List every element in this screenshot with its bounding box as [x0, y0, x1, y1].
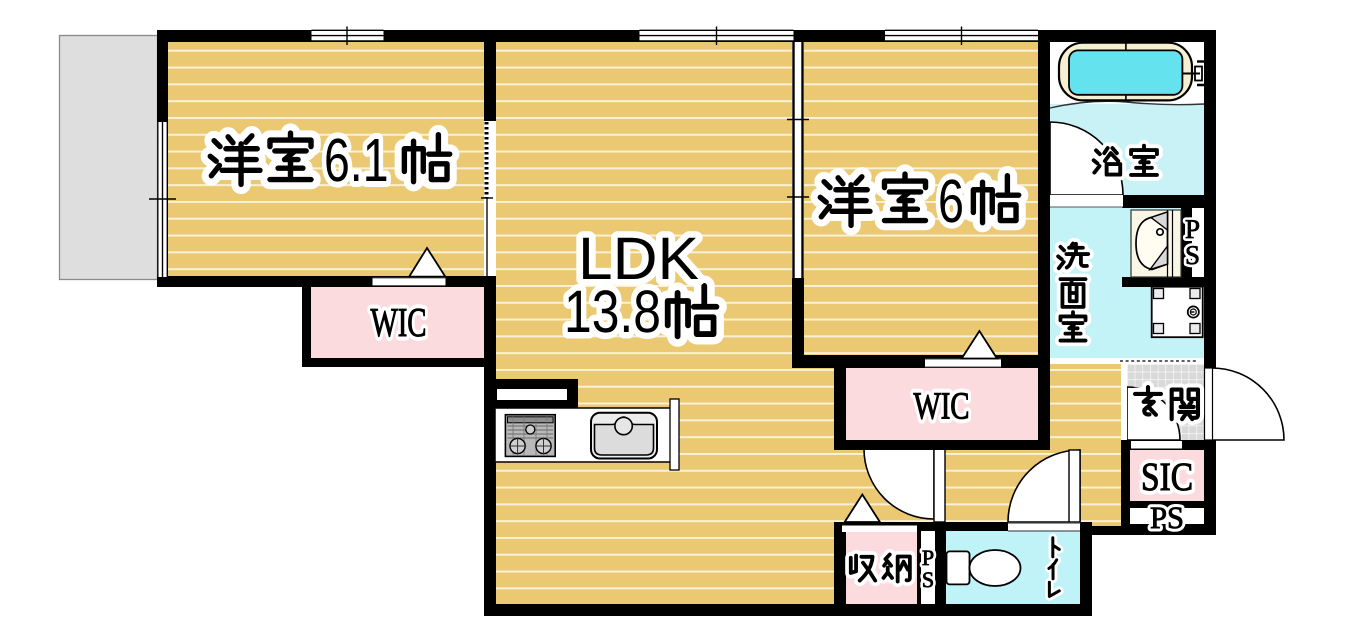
svg-text:6: 6 — [938, 167, 964, 235]
svg-text:S: S — [1185, 240, 1200, 270]
svg-text:PS: PS — [1150, 500, 1184, 535]
svg-text:S: S — [922, 567, 934, 592]
svg-text:13.8: 13.8 — [564, 278, 661, 345]
svg-text:WIC: WIC — [914, 386, 970, 428]
svg-text:SIC: SIC — [1141, 454, 1193, 499]
svg-text:6.1: 6.1 — [324, 126, 389, 194]
svg-text:WIC: WIC — [371, 299, 427, 345]
